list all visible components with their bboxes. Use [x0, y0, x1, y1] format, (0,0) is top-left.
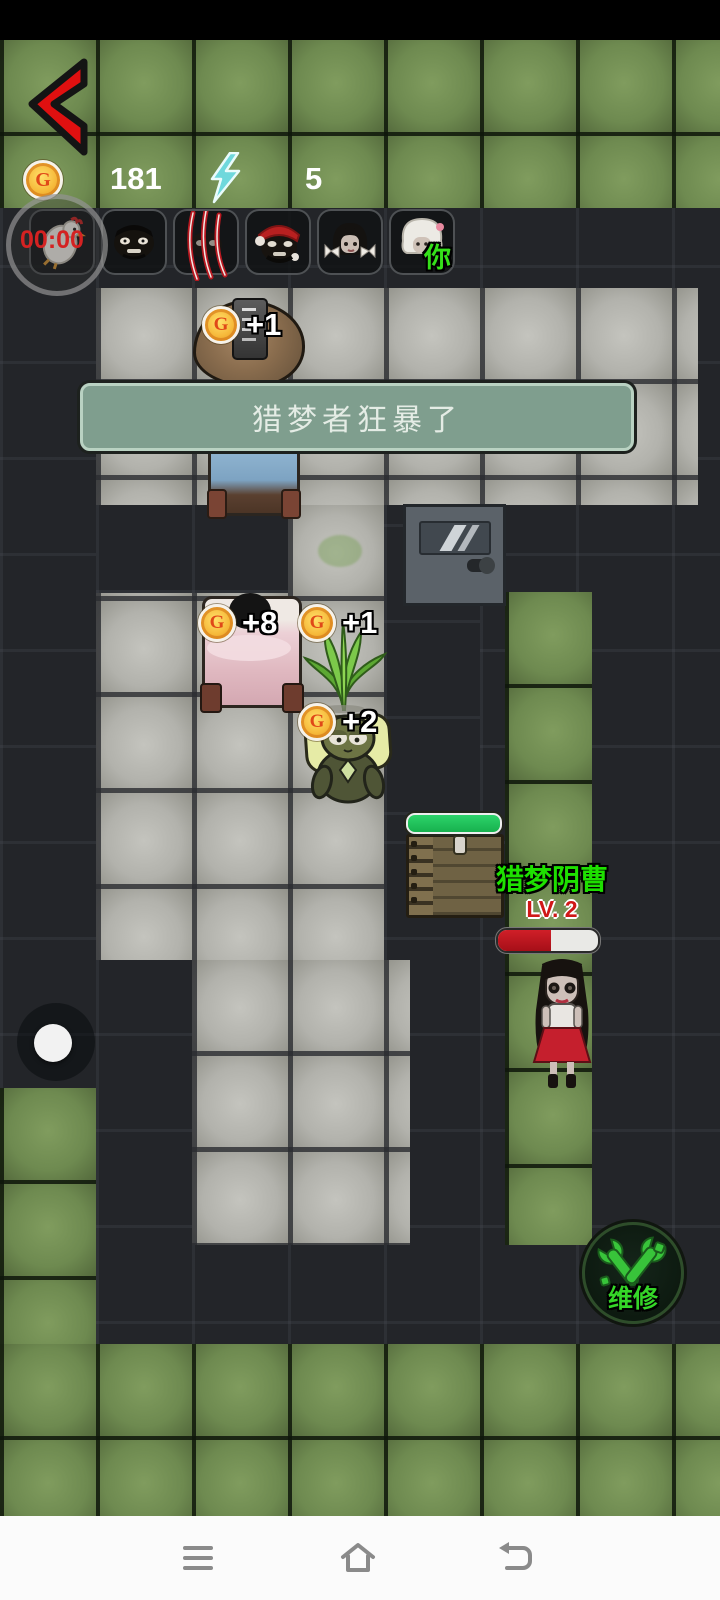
- enemy-level: LV. 2: [452, 896, 652, 923]
- reward-bed: G +8: [198, 604, 277, 642]
- roster-slot-dark-face[interactable]: [101, 209, 167, 275]
- repair-button[interactable]: 维修: [582, 1222, 684, 1324]
- you-indicator-label: 你: [424, 236, 451, 275]
- grass-area-bottom: [0, 1344, 720, 1516]
- enemy-hp-fill: [498, 930, 551, 951]
- door-handle: [467, 559, 493, 572]
- status-bar: [0, 0, 720, 40]
- back-button[interactable]: [20, 52, 92, 160]
- reward-value: +2: [342, 704, 377, 740]
- coin-count: 181: [110, 161, 162, 197]
- reward-value: +1: [246, 307, 281, 343]
- faint-sprout: [318, 535, 362, 567]
- menu-icon: [183, 1546, 213, 1570]
- enemy-name: 猎梦阴曹: [452, 858, 652, 898]
- wall-patch-left: [96, 505, 288, 593]
- energy-lightning-icon: [206, 152, 244, 204]
- repair-button-label: 维修: [585, 1279, 681, 1315]
- crate-hp-bar: [406, 813, 502, 834]
- joystick-knob[interactable]: [34, 1024, 72, 1062]
- game-screen: 猎梦阴曹 LV. 2 G +1 G +8 G: [0, 0, 720, 1600]
- roster-slot-white-hair[interactable]: 你: [389, 209, 455, 275]
- reward-value: +1: [342, 605, 377, 641]
- santa-hat-portrait-icon: [247, 211, 309, 273]
- roster-slot-bow-girl[interactable]: [317, 209, 383, 275]
- event-banner: 猎梦者狂暴了: [80, 383, 634, 451]
- timer-value: 00:00: [10, 226, 94, 255]
- metal-door: [403, 504, 506, 606]
- coin-icon: G: [198, 604, 236, 642]
- home-icon: [339, 1541, 377, 1575]
- ghost-girl-character: [512, 950, 612, 1092]
- crate-hp-fill: [408, 815, 500, 832]
- event-banner-text: 猎梦者狂暴了: [252, 395, 462, 439]
- game-viewport: 猎梦阴曹 LV. 2 G +1 G +8 G: [0, 0, 720, 1516]
- reward-goblin: G +2: [298, 703, 377, 741]
- door-window: [419, 521, 491, 555]
- nav-back-button[interactable]: [494, 1538, 538, 1578]
- dark-face-portrait-icon: [103, 211, 165, 273]
- android-nav-bar: [0, 1516, 720, 1600]
- bow-girl-portrait-icon: [319, 211, 381, 273]
- floor-area-lower: [192, 960, 410, 1245]
- nav-menu-button[interactable]: [176, 1538, 220, 1578]
- return-icon: [497, 1542, 535, 1574]
- coin-icon: G: [298, 604, 336, 642]
- roster-slot-santa-hat[interactable]: [245, 209, 311, 275]
- coin-icon: G: [298, 703, 336, 741]
- roster-slot-claw-marked[interactable]: [173, 209, 239, 275]
- energy-count: 5: [305, 161, 322, 197]
- nav-home-button[interactable]: [336, 1538, 380, 1578]
- enemy-hp-bar: [496, 928, 600, 953]
- claw-marks-icon: [175, 211, 237, 281]
- reward-mound: G +1: [202, 306, 281, 344]
- grass-area-top: [0, 40, 720, 208]
- reward-plant: G +1: [298, 604, 377, 642]
- coin-icon: G: [202, 306, 240, 344]
- reward-value: +8: [242, 605, 277, 641]
